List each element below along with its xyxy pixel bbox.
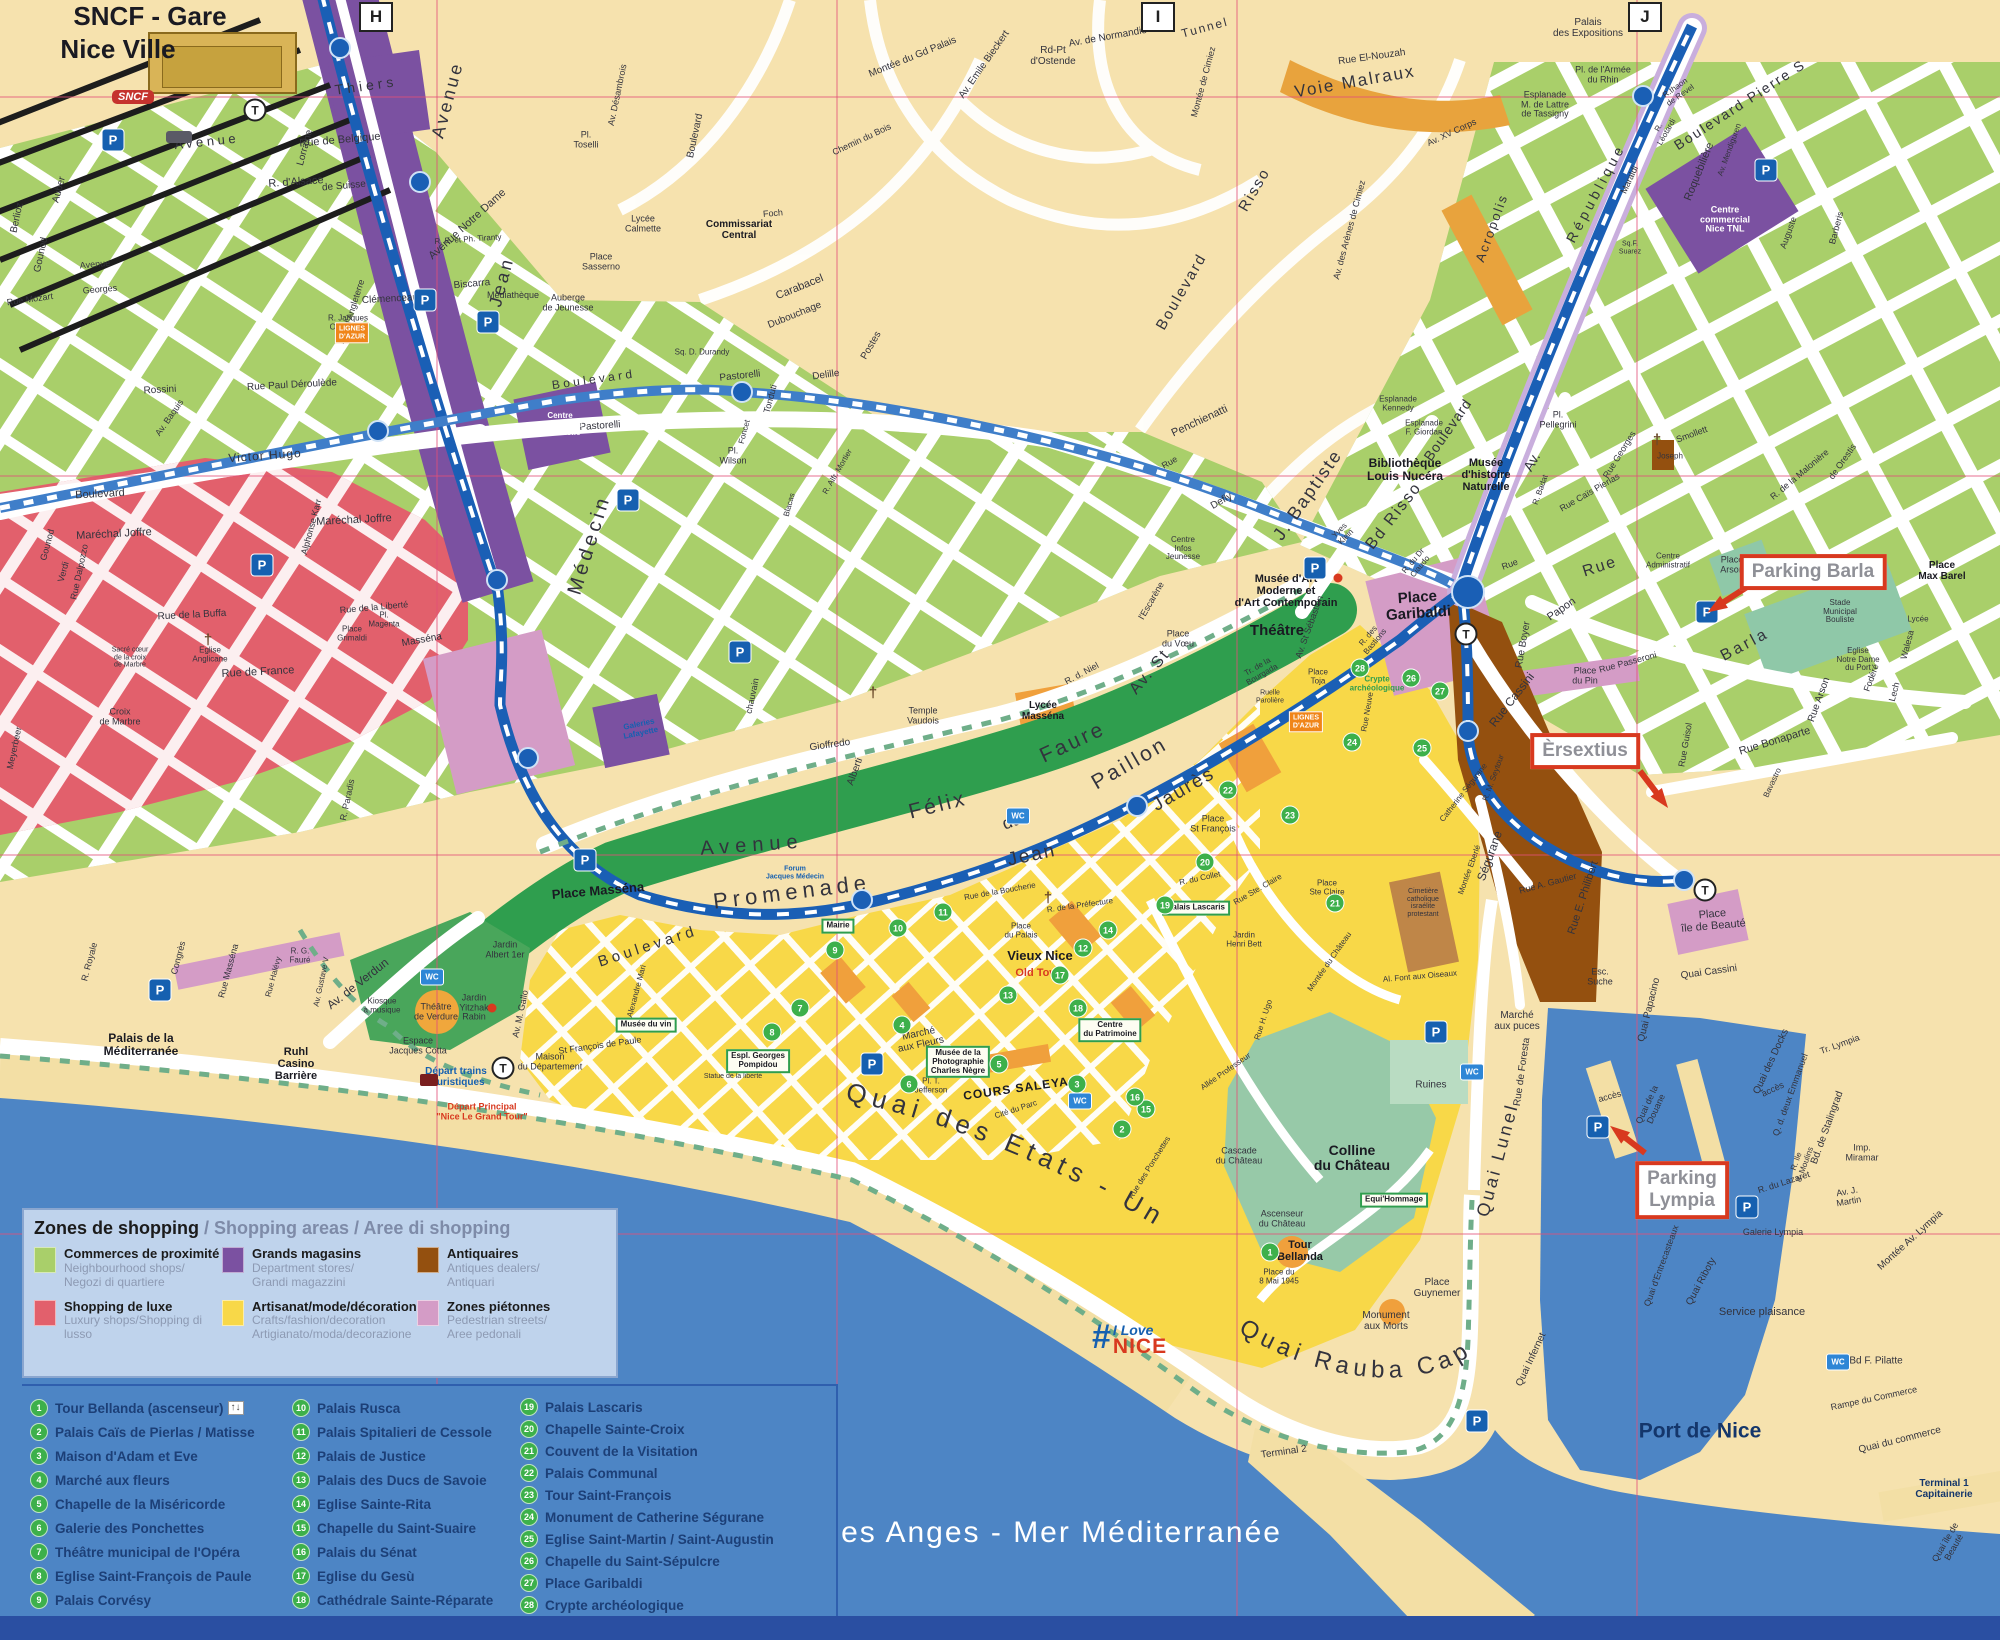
poi-number-badge: 18 bbox=[292, 1591, 310, 1609]
poi-label: Tour Saint-François bbox=[545, 1488, 672, 1503]
poi-label: Crypte archéologique bbox=[545, 1598, 684, 1613]
poi-list-item-25: 25Eglise Saint-Martin / Saint-Augustin bbox=[520, 1528, 830, 1550]
poi-label: Eglise du Gesù bbox=[317, 1569, 415, 1584]
poi-number-badge: 25 bbox=[520, 1530, 538, 1548]
bus-icon bbox=[166, 131, 192, 143]
poi-label: Palais Rusca bbox=[317, 1401, 400, 1416]
elevator-icon: ↑↓ bbox=[228, 1401, 244, 1415]
legend-label-translation: Pedestrian streets/ bbox=[447, 1314, 550, 1328]
legend-item-text: Commerces de proximitéNeighbourhood shop… bbox=[64, 1247, 219, 1290]
poi-list-item-17: 17Eglise du Gesù bbox=[292, 1564, 520, 1588]
poi-marker-13: 13 bbox=[999, 986, 1018, 1005]
poi-marker-4: 4 bbox=[893, 1016, 912, 1035]
wc-icon: WC bbox=[1068, 1093, 1092, 1110]
legend-swatch bbox=[34, 1300, 56, 1326]
parking-icon: P bbox=[477, 311, 500, 334]
parking-icon: P bbox=[861, 1053, 884, 1076]
poi-label: Tour Bellanda (ascenseur) bbox=[55, 1401, 224, 1416]
legend-label-translation: Negozi di quartiere bbox=[64, 1276, 219, 1290]
poi-number-badge: 10 bbox=[292, 1399, 310, 1417]
poi-list-item-18: 18Cathédrale Sainte-Réparate bbox=[292, 1588, 520, 1612]
legend-item-4: Shopping de luxeLuxury shops/Shopping di… bbox=[34, 1300, 222, 1343]
tram-stop bbox=[329, 37, 351, 59]
legend-label-translation: Neighbourhood shops/ bbox=[64, 1262, 219, 1276]
poi-label: Palais Lascaris bbox=[545, 1400, 643, 1415]
legend-label-fr: Zones piétonnes bbox=[447, 1300, 550, 1315]
poi-number-badge: 23 bbox=[520, 1486, 538, 1504]
poi-marker-26: 26 bbox=[1402, 669, 1421, 688]
legend-label-translation: Artigianato/moda/decorazione bbox=[252, 1328, 417, 1342]
parking-icon: P bbox=[574, 849, 597, 872]
poi-label: Chapelle du Saint-Sépulcre bbox=[545, 1554, 720, 1569]
poi-number-badge: 16 bbox=[292, 1543, 310, 1561]
poi-label: Chapelle de la Miséricorde bbox=[55, 1497, 225, 1512]
poi-list-item-7: 7Théâtre municipal de l'Opéra bbox=[30, 1540, 292, 1564]
nice-tourist-map: Quai des Etats - Unis Quai Rauba Capeu S… bbox=[0, 0, 2000, 1640]
poi-number-badge: 13 bbox=[292, 1471, 310, 1489]
callout-parking-barla: Parking Barla bbox=[1740, 554, 1887, 590]
poi-number-badge: 5 bbox=[30, 1495, 48, 1513]
tram-terminus-icon: T bbox=[492, 1057, 515, 1080]
parking-icon: P bbox=[149, 979, 172, 1002]
poi-marker-23: 23 bbox=[1281, 806, 1300, 825]
poi-marker-17: 17 bbox=[1051, 966, 1070, 985]
poi-marker-14: 14 bbox=[1099, 921, 1118, 940]
poi-label: Monument de Catherine Ségurane bbox=[545, 1510, 764, 1525]
parking-icon: P bbox=[1755, 159, 1778, 182]
poi-list-panel: 1Tour Bellanda (ascenseur)↑↓2Palais Caïs… bbox=[22, 1384, 838, 1616]
poi-marker-2: 2 bbox=[1113, 1120, 1132, 1139]
poi-number-badge: 4 bbox=[30, 1471, 48, 1489]
poi-marker-3: 3 bbox=[1068, 1075, 1087, 1094]
boxed-site-label: Equi'Hommage bbox=[1360, 1193, 1428, 1208]
poi-label: Eglise Sainte-Rita bbox=[317, 1497, 431, 1512]
poi-list-item-24: 24Monument de Catherine Ségurane bbox=[520, 1506, 830, 1528]
poi-marker-11: 11 bbox=[934, 903, 953, 922]
tram-stop bbox=[486, 569, 508, 591]
legend-label-translation: Antiques dealers/ bbox=[447, 1262, 540, 1276]
wc-icon: WC bbox=[420, 969, 444, 986]
tram-stop bbox=[1451, 575, 1485, 609]
poi-number-badge: 28 bbox=[520, 1596, 538, 1614]
parking-icon: P bbox=[102, 129, 125, 152]
poi-number-badge: 14 bbox=[292, 1495, 310, 1513]
poi-label: Eglise Saint-Martin / Saint-Augustin bbox=[545, 1532, 774, 1547]
poi-number-badge: 22 bbox=[520, 1464, 538, 1482]
tram-stop bbox=[731, 381, 753, 403]
wc-icon: WC bbox=[1460, 1064, 1484, 1081]
poi-list-item-12: 12Palais de Justice bbox=[292, 1444, 520, 1468]
parking-icon: P bbox=[414, 289, 437, 312]
parking-icon: P bbox=[1466, 1410, 1489, 1433]
poi-label: Chapelle Sainte-Croix bbox=[545, 1422, 685, 1437]
nice-text: NICE bbox=[1113, 1338, 1167, 1357]
tram-stop bbox=[1126, 795, 1148, 817]
poi-marker-22: 22 bbox=[1219, 781, 1238, 800]
poi-list-item-22: 22Palais Communal bbox=[520, 1462, 830, 1484]
poi-marker-21: 21 bbox=[1326, 894, 1345, 913]
poi-red-dot bbox=[488, 1004, 497, 1013]
poi-label: Palais de Justice bbox=[317, 1449, 426, 1464]
poi-red-dot bbox=[1334, 574, 1343, 583]
parking-icon: P bbox=[1736, 1196, 1759, 1219]
church-icon: † bbox=[1044, 890, 1052, 907]
poi-number-badge: 6 bbox=[30, 1519, 48, 1537]
poi-marker-8: 8 bbox=[763, 1023, 782, 1042]
legend-items: Commerces de proximitéNeighbourhood shop… bbox=[34, 1247, 606, 1342]
poi-column-2: 10Palais Rusca11Palais Spitalieri de Ces… bbox=[292, 1396, 520, 1616]
poi-number-badge: 3 bbox=[30, 1447, 48, 1465]
poi-label: Maison d'Adam et Eve bbox=[55, 1449, 198, 1464]
legend-label-translation: Department stores/ bbox=[252, 1262, 361, 1276]
poi-label: Couvent de la Visitation bbox=[545, 1444, 698, 1459]
tourist-train-icon bbox=[420, 1074, 438, 1086]
church-icon: † bbox=[869, 685, 877, 702]
poi-list-item-15: 15Chapelle du Saint-Suaire bbox=[292, 1516, 520, 1540]
poi-label: Palais du Sénat bbox=[317, 1545, 417, 1560]
poi-marker-27: 27 bbox=[1431, 682, 1450, 701]
poi-number-badge: 2 bbox=[30, 1423, 48, 1441]
boxed-site-label: Mairie bbox=[821, 919, 854, 934]
legend-label-translation: Luxury shops/Shopping di lusso bbox=[64, 1314, 222, 1342]
poi-list-item-14: 14Eglise Sainte-Rita bbox=[292, 1492, 520, 1516]
legend-swatch bbox=[34, 1247, 56, 1273]
legend-label-translation: Antiquari bbox=[447, 1276, 540, 1290]
legend-item-2: Grands magasinsDepartment stores/Grandi … bbox=[222, 1247, 417, 1290]
poi-marker-25: 25 bbox=[1413, 739, 1432, 758]
poi-marker-6: 6 bbox=[900, 1075, 919, 1094]
poi-list-item-27: 27Place Garibaldi bbox=[520, 1572, 830, 1594]
poi-number-badge: 15 bbox=[292, 1519, 310, 1537]
poi-label: Cathédrale Sainte-Réparate bbox=[317, 1593, 493, 1608]
tram-stop bbox=[517, 747, 539, 769]
legend-label-translation: Grandi magazzini bbox=[252, 1276, 361, 1290]
tram-stop bbox=[1673, 869, 1695, 891]
poi-list-item-26: 26Chapelle du Saint-Sépulcre bbox=[520, 1550, 830, 1572]
poi-label: Marché aux fleurs bbox=[55, 1473, 170, 1488]
legend-item-6: Zones piétonnesPedestrian streets/Aree p… bbox=[417, 1300, 597, 1343]
poi-number-badge: 20 bbox=[520, 1420, 538, 1438]
legend-item-text: Shopping de luxeLuxury shops/Shopping di… bbox=[64, 1300, 222, 1343]
callout-èrsextius: Èrsextius bbox=[1530, 733, 1640, 769]
shopping-zones-legend: Zones de shopping / Shopping areas / Are… bbox=[22, 1208, 618, 1378]
poi-marker-19: 19 bbox=[1156, 896, 1175, 915]
poi-list-item-5: 5Chapelle de la Miséricorde bbox=[30, 1492, 292, 1516]
poi-label: Théâtre municipal de l'Opéra bbox=[55, 1545, 240, 1560]
poi-list-item-20: 20Chapelle Sainte-Croix bbox=[520, 1418, 830, 1440]
poi-number-badge: 9 bbox=[30, 1591, 48, 1609]
legend-swatch bbox=[417, 1247, 439, 1273]
poi-list-item-28: 28Crypte archéologique bbox=[520, 1594, 830, 1616]
wc-icon: WC bbox=[1006, 808, 1030, 825]
callout-parking-lympia: Parking Lympia bbox=[1635, 1161, 1729, 1219]
church-icon: † bbox=[1653, 432, 1661, 449]
sncf-logo: SNCF bbox=[112, 90, 154, 104]
hash-glyph: # bbox=[1092, 1322, 1111, 1353]
legend-item-3: AntiquairesAntiques dealers/Antiquari bbox=[417, 1247, 597, 1290]
poi-marker-16: 16 bbox=[1126, 1088, 1145, 1107]
legend-item-text: Grands magasinsDepartment stores/Grandi … bbox=[252, 1247, 361, 1290]
legend-label-fr: Antiquaires bbox=[447, 1247, 540, 1262]
legend-item-1: Commerces de proximitéNeighbourhood shop… bbox=[34, 1247, 222, 1290]
parking-icon: P bbox=[1425, 1021, 1448, 1044]
boxed-site-label: Centre du Patrimoine bbox=[1078, 1018, 1141, 1042]
legend-item-text: Zones piétonnesPedestrian streets/Aree p… bbox=[447, 1300, 550, 1343]
tram-stop bbox=[1457, 720, 1479, 742]
poi-number-badge: 12 bbox=[292, 1447, 310, 1465]
poi-number-badge: 11 bbox=[292, 1423, 310, 1441]
church-icon: † bbox=[204, 632, 212, 649]
poi-list-item-16: 16Palais du Sénat bbox=[292, 1540, 520, 1564]
poi-label: Palais Corvésy bbox=[55, 1593, 151, 1608]
poi-list-item-9: 9Palais Corvésy bbox=[30, 1588, 292, 1612]
poi-marker-10: 10 bbox=[889, 919, 908, 938]
tram-stop bbox=[367, 420, 389, 442]
poi-number-badge: 19 bbox=[520, 1398, 538, 1416]
poi-label: Galerie des Ponchettes bbox=[55, 1521, 204, 1536]
lignes-azur-office: LIGNES D'AZUR bbox=[1289, 711, 1323, 732]
legend-label-fr: Shopping de luxe bbox=[64, 1300, 222, 1315]
poi-marker-5: 5 bbox=[990, 1055, 1009, 1074]
poi-number-badge: 17 bbox=[292, 1567, 310, 1585]
legend-label-translation: Aree pedonali bbox=[447, 1328, 550, 1342]
ilovenice-logo: # I Love NICE bbox=[1092, 1322, 1167, 1357]
parking-icon: P bbox=[617, 489, 640, 512]
poi-marker-1: 1 bbox=[1261, 1243, 1280, 1262]
tram-stop bbox=[409, 171, 431, 193]
poi-number-badge: 8 bbox=[30, 1567, 48, 1585]
parking-icon: P bbox=[1696, 601, 1719, 624]
legend-label-fr: Artisanat/mode/décoration bbox=[252, 1300, 417, 1315]
tram-stop bbox=[851, 889, 873, 911]
legend-swatch bbox=[417, 1300, 439, 1326]
poi-marker-24: 24 bbox=[1343, 733, 1362, 752]
poi-number-badge: 26 bbox=[520, 1552, 538, 1570]
poi-column-3: 19Palais Lascaris20Chapelle Sainte-Croix… bbox=[520, 1396, 830, 1616]
tram-terminus-icon: T bbox=[244, 99, 267, 122]
poi-list-item-1: 1Tour Bellanda (ascenseur)↑↓ bbox=[30, 1396, 292, 1420]
poi-label: Palais Spitalieri de Cessole bbox=[317, 1425, 492, 1440]
poi-list-item-4: 4Marché aux fleurs bbox=[30, 1468, 292, 1492]
poi-list-item-21: 21Couvent de la Visitation bbox=[520, 1440, 830, 1462]
poi-number-badge: 21 bbox=[520, 1442, 538, 1460]
poi-list-item-23: 23Tour Saint-François bbox=[520, 1484, 830, 1506]
grid-letter-J: J bbox=[1628, 2, 1662, 32]
poi-number-badge: 24 bbox=[520, 1508, 538, 1526]
parking-icon: P bbox=[1587, 1116, 1610, 1139]
poi-marker-9: 9 bbox=[826, 941, 845, 960]
boxed-site-label: Espl. Georges Pompidou bbox=[726, 1049, 790, 1073]
parking-icon: P bbox=[1304, 557, 1327, 580]
train-station-building bbox=[148, 32, 297, 94]
poi-label: Palais des Ducs de Savoie bbox=[317, 1473, 487, 1488]
poi-label: Eglise Saint-François de Paule bbox=[55, 1569, 252, 1584]
legend-title: Zones de shopping / Shopping areas / Are… bbox=[34, 1218, 606, 1239]
poi-column-1: 1Tour Bellanda (ascenseur)↑↓2Palais Caïs… bbox=[30, 1396, 292, 1616]
lignes-azur-office: LIGNES D'AZUR bbox=[335, 322, 369, 343]
poi-label: Place Garibaldi bbox=[545, 1576, 643, 1591]
poi-number-badge: 7 bbox=[30, 1543, 48, 1561]
poi-marker-12: 12 bbox=[1074, 939, 1093, 958]
poi-list-item-8: 8Eglise Saint-François de Paule bbox=[30, 1564, 292, 1588]
poi-marker-20: 20 bbox=[1196, 853, 1215, 872]
tram-terminus-icon: T bbox=[1455, 623, 1478, 646]
boxed-site-label: Musée du vin bbox=[616, 1018, 677, 1033]
legend-label-translation: Crafts/fashion/decoration bbox=[252, 1314, 417, 1328]
legend-item-5: Artisanat/mode/décorationCrafts/fashion/… bbox=[222, 1300, 417, 1343]
legend-swatch bbox=[222, 1300, 244, 1326]
legend-label-fr: Commerces de proximité bbox=[64, 1247, 219, 1262]
tram-stop bbox=[1632, 85, 1654, 107]
poi-label: Chapelle du Saint-Suaire bbox=[317, 1521, 476, 1536]
poi-marker-28: 28 bbox=[1351, 659, 1370, 678]
poi-list-item-19: 19Palais Lascaris bbox=[520, 1396, 830, 1418]
parking-icon: P bbox=[729, 641, 752, 664]
tram-terminus-icon: T bbox=[1694, 879, 1717, 902]
poi-label: Palais Communal bbox=[545, 1466, 658, 1481]
wc-icon: WC bbox=[1826, 1354, 1850, 1371]
poi-list-item-11: 11Palais Spitalieri de Cessole bbox=[292, 1420, 520, 1444]
grid-letter-H: H bbox=[359, 2, 393, 32]
grid-letter-I: I bbox=[1141, 2, 1175, 32]
poi-number-badge: 1 bbox=[30, 1399, 48, 1417]
legend-item-text: Artisanat/mode/décorationCrafts/fashion/… bbox=[252, 1300, 417, 1343]
legend-label-fr: Grands magasins bbox=[252, 1247, 361, 1262]
poi-list-item-10: 10Palais Rusca bbox=[292, 1396, 520, 1420]
parking-icon: P bbox=[251, 554, 274, 577]
bottom-bar bbox=[0, 1616, 2000, 1640]
poi-list-item-2: 2Palais Caïs de Pierlas / Matisse bbox=[30, 1420, 292, 1444]
poi-marker-18: 18 bbox=[1069, 999, 1088, 1018]
legend-swatch bbox=[222, 1247, 244, 1273]
legend-item-text: AntiquairesAntiques dealers/Antiquari bbox=[447, 1247, 540, 1290]
poi-list-item-3: 3Maison d'Adam et Eve bbox=[30, 1444, 292, 1468]
poi-number-badge: 27 bbox=[520, 1574, 538, 1592]
poi-list-item-13: 13Palais des Ducs de Savoie bbox=[292, 1468, 520, 1492]
poi-list-item-6: 6Galerie des Ponchettes bbox=[30, 1516, 292, 1540]
poi-marker-7: 7 bbox=[791, 999, 810, 1018]
boxed-site-label: Musée de la Photographie Charles Nègre bbox=[926, 1046, 990, 1078]
poi-label: Palais Caïs de Pierlas / Matisse bbox=[55, 1425, 255, 1440]
